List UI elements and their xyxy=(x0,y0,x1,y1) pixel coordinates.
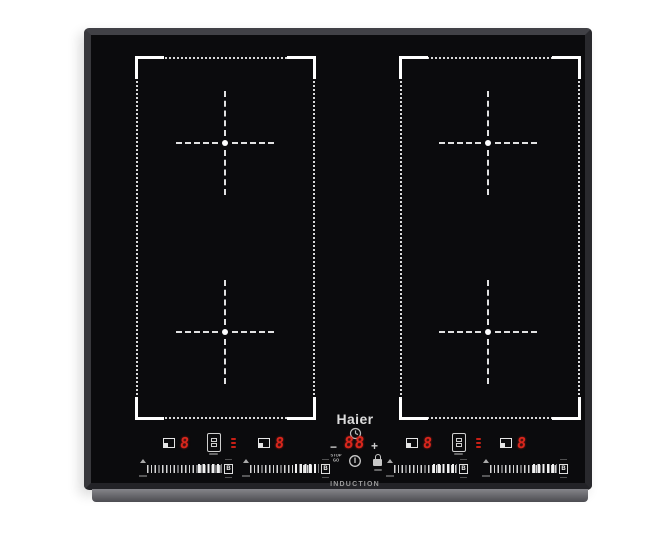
pan-select-icon[interactable] xyxy=(163,438,175,448)
zone-corner-bracket xyxy=(552,397,581,420)
pan-select-icon[interactable] xyxy=(500,438,512,448)
bridge-zone-icon[interactable] xyxy=(207,433,221,452)
power-level-display: 8 xyxy=(179,436,190,451)
slider-min-mark xyxy=(483,464,488,473)
front-edge-trim xyxy=(92,489,588,502)
zone-corner-bracket xyxy=(287,397,316,420)
zone-corner-bracket xyxy=(135,397,164,420)
zone-corner-bracket xyxy=(399,56,428,79)
zone-corner-bracket xyxy=(287,56,316,79)
zone-corner-bracket xyxy=(135,56,164,79)
power-slider-right-b[interactable]: B xyxy=(483,464,568,473)
induction-label: INDUCTION xyxy=(315,481,395,488)
power-level-display: 8 xyxy=(274,436,285,451)
stop-and-go-key[interactable]: STOP GO xyxy=(329,454,344,463)
pan-select-icon[interactable] xyxy=(406,438,418,448)
slider-min-mark xyxy=(243,464,248,473)
slider-min-mark xyxy=(387,464,392,473)
zone-right-a-display-group: 8 xyxy=(406,435,432,451)
power-slider-left-a[interactable]: B xyxy=(140,464,233,473)
zone-left-b-display-group: 8 xyxy=(258,435,284,451)
timer-indicator-dots xyxy=(476,438,481,448)
boost-key[interactable]: B xyxy=(459,464,468,474)
lock-icon xyxy=(373,459,382,466)
zone-corner-bracket xyxy=(552,56,581,79)
power-slider-left-b[interactable]: B xyxy=(243,464,330,473)
timer-plus-key[interactable]: + xyxy=(371,440,378,452)
brand-logo: Haier xyxy=(325,411,385,427)
timer-display: 88 xyxy=(343,435,366,451)
power-level-display: 8 xyxy=(516,436,527,451)
slider-ticks[interactable] xyxy=(490,465,557,473)
slider-ticks[interactable] xyxy=(394,465,457,473)
flex-zone-right xyxy=(400,57,580,419)
zone-left-a-display-group: 8 xyxy=(163,435,189,451)
slider-ticks[interactable] xyxy=(250,465,319,473)
induction-cooktop-surface: Haier 8 8 8 8 − 88 + STOP GO xyxy=(84,28,592,490)
pan-select-icon[interactable] xyxy=(258,438,270,448)
power-slider-right-a[interactable]: B xyxy=(387,464,468,473)
bridge-zone-icon[interactable] xyxy=(452,433,466,452)
boost-key[interactable]: B xyxy=(321,464,330,474)
timer-indicator-dots xyxy=(231,438,236,448)
power-button[interactable] xyxy=(348,453,362,473)
power-level-display: 8 xyxy=(422,436,433,451)
boost-key[interactable]: B xyxy=(559,464,568,474)
timer-minus-key[interactable]: − xyxy=(330,441,337,453)
slider-min-mark xyxy=(140,464,145,473)
zone-corner-bracket xyxy=(399,397,428,420)
child-lock-key[interactable] xyxy=(373,454,383,471)
boost-key[interactable]: B xyxy=(224,464,233,474)
slider-ticks[interactable] xyxy=(147,465,222,473)
zone-right-b-display-group: 8 xyxy=(500,435,526,451)
